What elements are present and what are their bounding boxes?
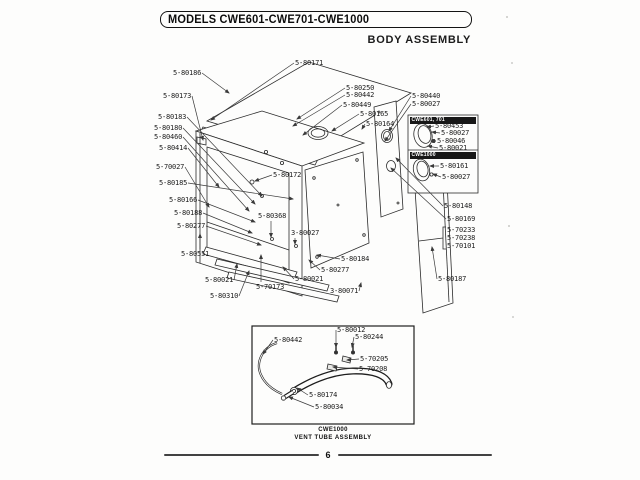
part-number-label: 5-70238 xyxy=(447,234,475,242)
inset-title-cwe601-701: CWE601, 701 xyxy=(410,117,476,124)
part-number-label: 5-80449 xyxy=(343,101,371,109)
part-number-label: 5-80027 xyxy=(442,173,470,181)
models-header-box: MODELS CWE601-CWE701-CWE1000 xyxy=(160,11,472,28)
page-number: 6 xyxy=(326,450,331,460)
part-number-label: 5-80180 xyxy=(154,124,182,132)
part-number-label: 5-80188 xyxy=(174,209,202,217)
footer-rule-right xyxy=(338,454,493,456)
part-number-label: 5-80021 xyxy=(205,276,233,284)
part-number-label: 5-70027 xyxy=(156,163,184,171)
part-number-label: 5-80187 xyxy=(438,275,466,283)
part-number-label: 5-80166 xyxy=(169,196,197,204)
part-number-label: 5-80165 xyxy=(360,110,388,118)
part-number-label: 5-80185 xyxy=(159,179,187,187)
part-number-label: 5-80414 xyxy=(159,144,187,152)
part-number-label: 5-70205 xyxy=(360,355,388,363)
part-number-label: 5-80164 xyxy=(366,120,394,128)
part-number-label: 5-80174 xyxy=(309,391,337,399)
footer-rule-left xyxy=(164,454,319,456)
vent-caption-title: VENT TUBE ASSEMBLY xyxy=(252,434,414,442)
part-number-label: 5-80186 xyxy=(173,69,201,77)
inset-title-cwe1000: CWE1000 xyxy=(410,152,476,159)
part-number-label: 5-80027 xyxy=(441,129,469,137)
manual-page: MODELS CWE601-CWE701-CWE1000 BODY ASSEMB… xyxy=(0,0,640,480)
part-number-label: 5-80169 xyxy=(447,215,475,223)
page-title: BODY ASSEMBLY xyxy=(338,34,471,46)
part-number-label: 5-70233 xyxy=(447,226,475,234)
part-number-label: 5-80172 xyxy=(273,171,301,179)
part-number-label: 3-80071 xyxy=(330,287,358,295)
part-number-label: 5-80551 xyxy=(181,250,209,258)
part-number-label: 5-70208 xyxy=(359,365,387,373)
part-number-label: 5-80440 xyxy=(412,92,440,100)
part-number-label: 5-80244 xyxy=(355,333,383,341)
part-number-label: 5-80277 xyxy=(321,266,349,274)
vent-caption-model: CWE1000 xyxy=(252,427,414,434)
part-number-label: 3-80027 xyxy=(291,229,319,237)
part-number-label: 5-80034 xyxy=(315,403,343,411)
part-number-label: 5-80027 xyxy=(412,100,440,108)
part-number-label: 5-80148 xyxy=(444,202,472,210)
part-number-label: 5-80442 xyxy=(346,91,374,99)
part-number-label: 5-70173 xyxy=(256,283,284,291)
part-number-label: 5-80183 xyxy=(158,113,186,121)
part-number-label: 5-80277 xyxy=(177,222,205,230)
part-number-label: 5-70101 xyxy=(447,242,475,250)
part-number-label: 5-80310 xyxy=(210,292,238,300)
part-number-label: 5-80021 xyxy=(295,275,323,283)
part-number-label: 5-80173 xyxy=(163,92,191,100)
part-number-label: 5-80460 xyxy=(154,133,182,141)
models-title: MODELS CWE601-CWE701-CWE1000 xyxy=(168,13,369,26)
part-number-label: 5-80184 xyxy=(341,255,369,263)
part-labels-layer: 5-801865-801735-801835-801805-804605-804… xyxy=(0,0,640,480)
part-number-label: 5-80442 xyxy=(274,336,302,344)
part-number-label: 5-80161 xyxy=(440,162,468,170)
vent-caption: CWE1000 VENT TUBE ASSEMBLY xyxy=(252,427,414,442)
part-number-label: 5-80368 xyxy=(258,212,286,220)
page-footer: 6 xyxy=(164,450,492,460)
part-number-label: 5-80171 xyxy=(295,59,323,67)
